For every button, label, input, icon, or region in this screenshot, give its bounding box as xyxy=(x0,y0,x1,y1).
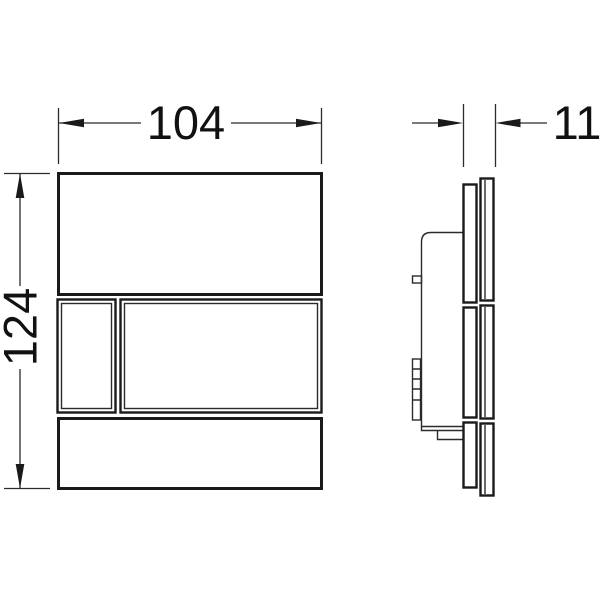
front-large-button xyxy=(121,300,322,413)
front-large-button-inner-outline xyxy=(125,304,318,409)
front-small-button-inner-outline xyxy=(62,304,112,409)
side-base-plate-middle-segment xyxy=(464,308,477,418)
side-mounting-frame-outline xyxy=(422,233,464,431)
side-glass-top-segment xyxy=(481,179,494,301)
side-frame-clip-notch xyxy=(413,276,422,283)
side-view xyxy=(413,179,494,496)
depth-arrow-right-icon xyxy=(496,119,521,128)
front-bottom-glass-panel xyxy=(59,419,322,489)
width-dimension-label: 104 xyxy=(147,96,225,149)
height-arrow-up-icon xyxy=(16,174,25,199)
technical-drawing: 104 124 11 xyxy=(0,0,600,600)
side-base-plate-bottom-segment xyxy=(464,423,477,488)
height-dimension-label: 124 xyxy=(0,288,46,366)
dimension-height: 124 xyxy=(0,174,50,489)
side-base-plate-top-segment xyxy=(464,185,477,303)
depth-dimension-label: 11 xyxy=(553,96,600,149)
depth-arrow-left-icon xyxy=(438,119,463,128)
width-arrow-left-icon xyxy=(59,119,84,128)
width-arrow-right-icon xyxy=(296,119,321,128)
front-small-button xyxy=(58,300,116,413)
dimension-width: 104 xyxy=(59,96,322,164)
drawing-canvas: 104 124 11 xyxy=(0,0,600,600)
side-glass-middle-segment xyxy=(481,306,494,419)
front-top-glass-panel xyxy=(59,174,322,295)
dimension-depth: 11 xyxy=(412,96,600,167)
side-frame-bottom-tab xyxy=(438,431,464,440)
height-arrow-down-icon xyxy=(16,464,25,489)
side-glass-bottom-segment xyxy=(481,424,494,496)
front-view xyxy=(58,174,322,489)
side-frame-clip-strip-teeth xyxy=(413,369,421,400)
